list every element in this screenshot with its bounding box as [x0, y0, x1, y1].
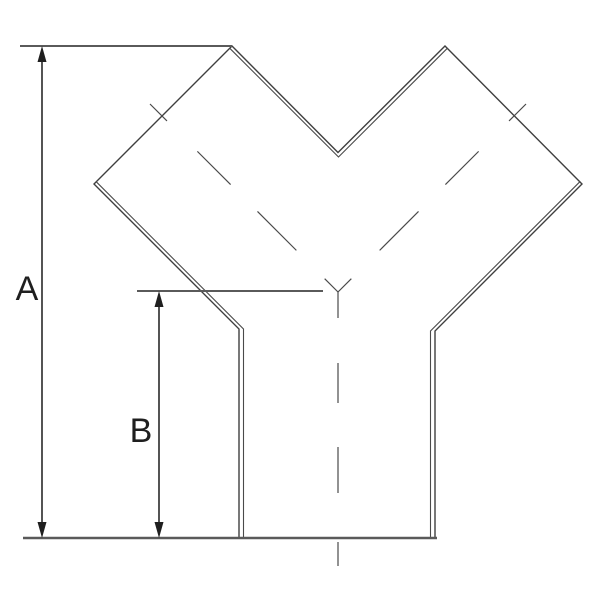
dimension-b: B	[130, 291, 164, 538]
technical-drawing-page: A B	[0, 0, 600, 600]
arrowhead-a-top	[38, 46, 47, 62]
arrowhead-b-top	[155, 291, 164, 307]
dimension-a: A	[16, 46, 47, 538]
wall-line-crotch	[230, 48, 447, 157]
wall-line-right	[431, 181, 581, 538]
wye-fitting-dimension-drawing: A B	[0, 0, 600, 600]
wall-line-left	[96, 182, 243, 538]
arrowhead-a-bottom	[38, 522, 47, 538]
dimension-a-label: A	[16, 270, 39, 308]
dimension-b-label: B	[130, 412, 153, 450]
arrowhead-b-bottom	[155, 522, 164, 538]
